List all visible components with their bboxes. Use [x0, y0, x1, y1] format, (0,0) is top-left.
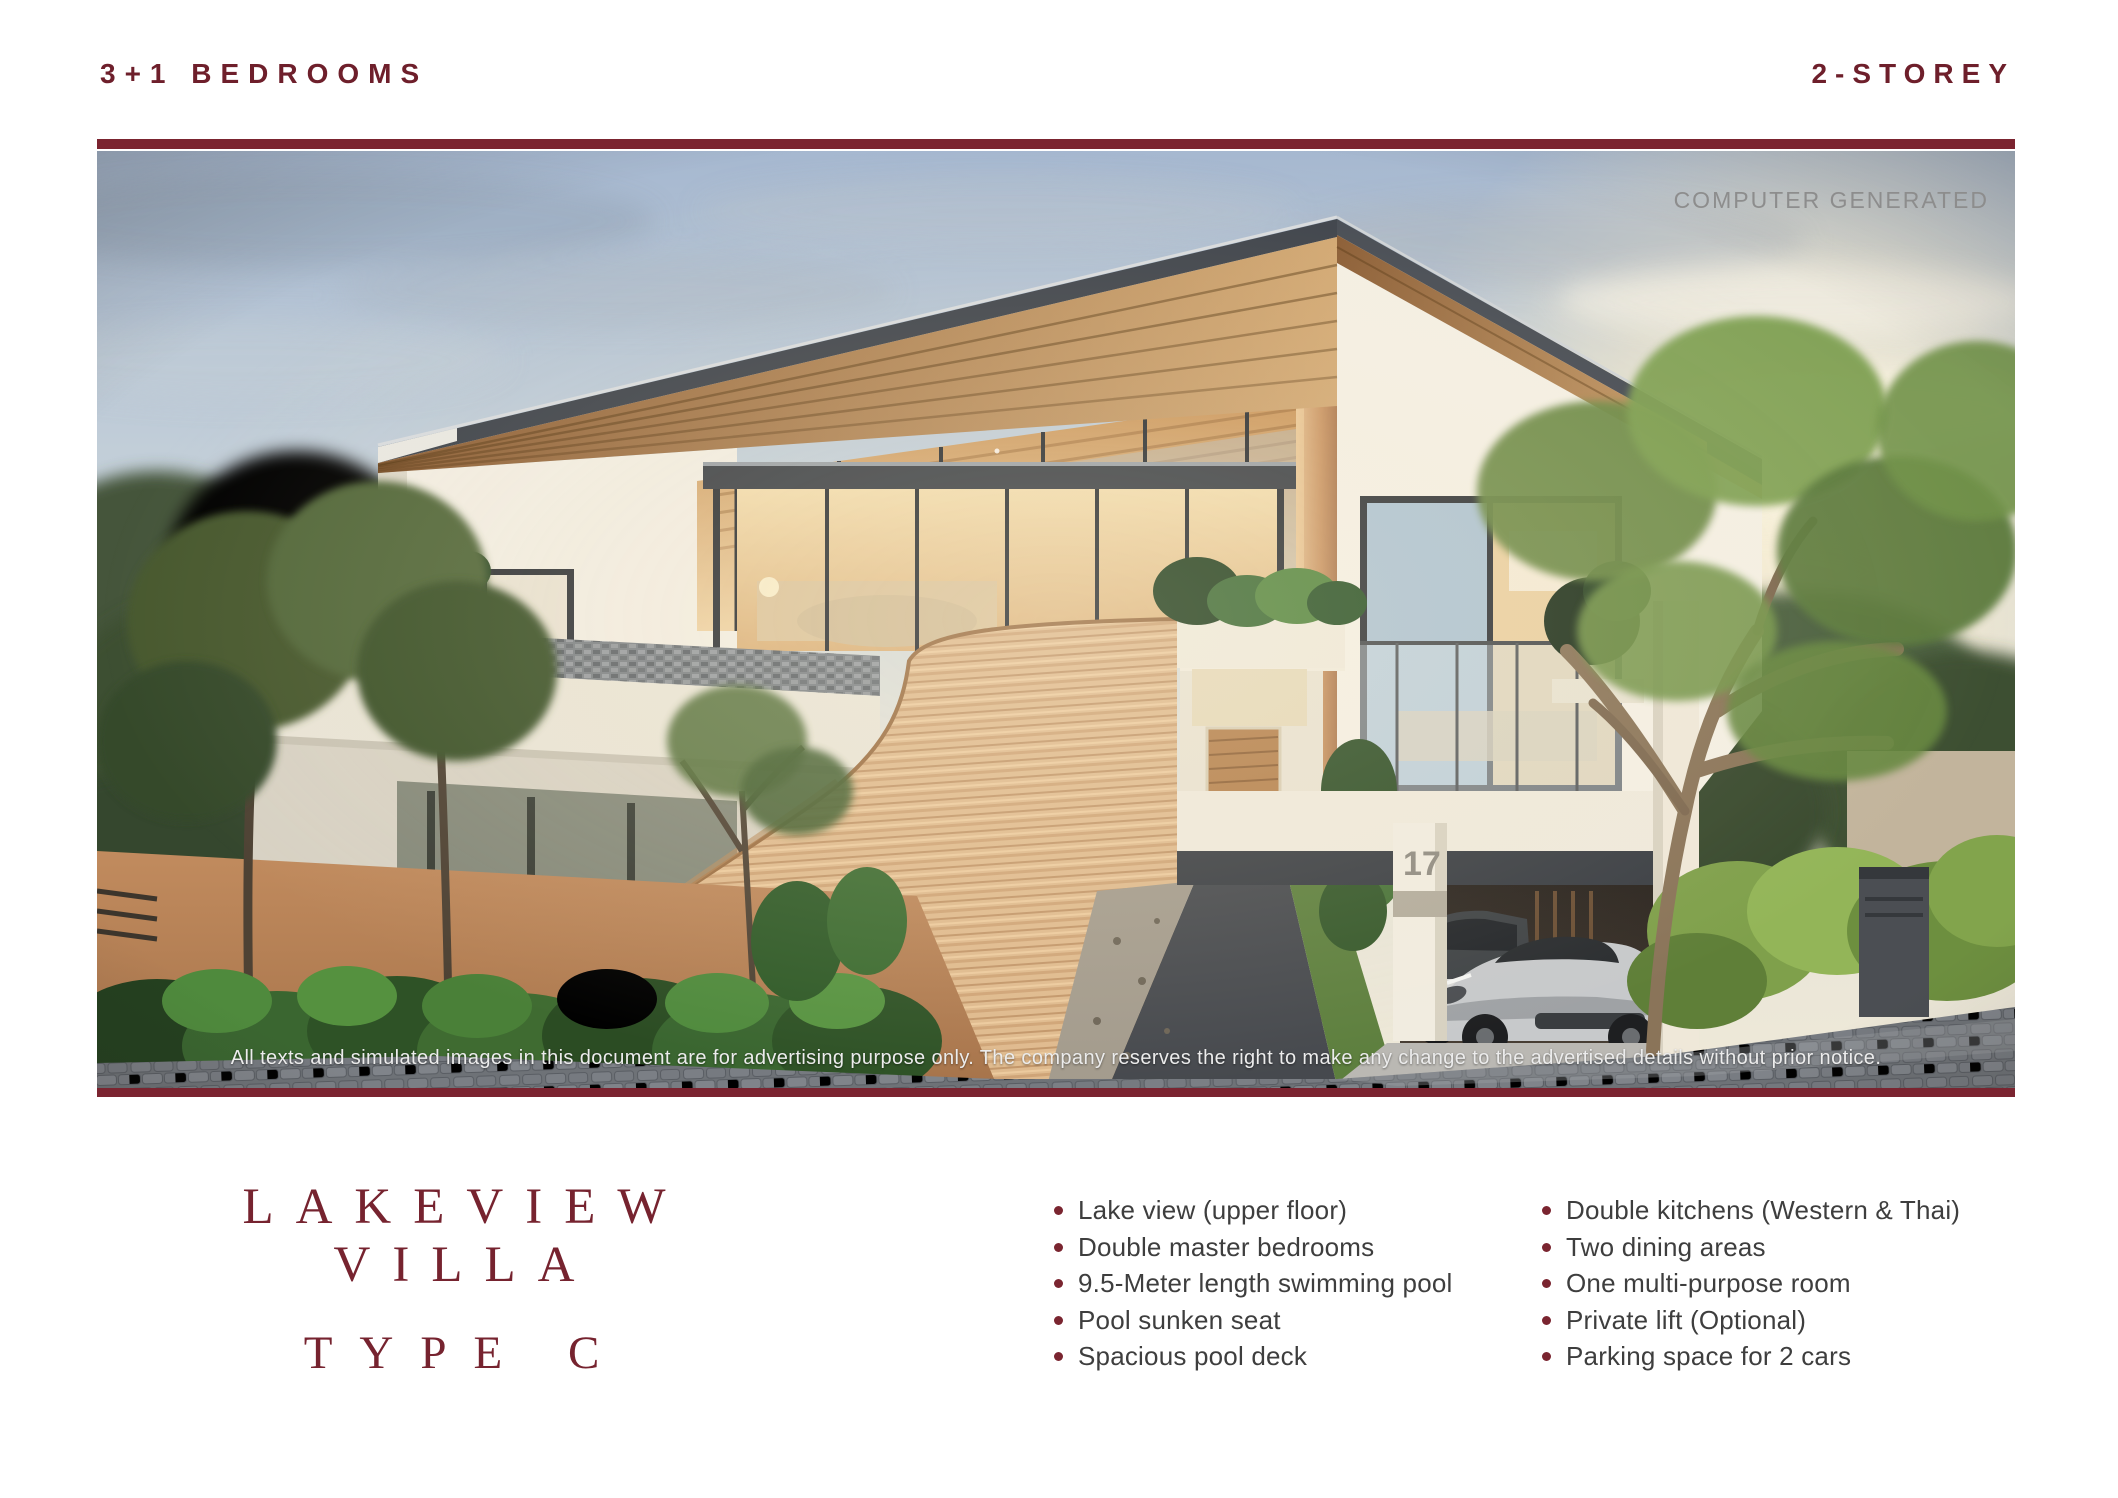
storey-label: 2-STOREY [1811, 58, 2015, 90]
feature-item: Lake view (upper floor) [1052, 1192, 1542, 1229]
feature-item: Pool sunken seat [1052, 1302, 1542, 1339]
computer-generated-watermark: COMPUTER GENERATED [1674, 187, 1989, 214]
top-divider [97, 139, 2015, 149]
title-block: LAKEVIEW VILLA TYPE C [115, 1178, 815, 1380]
feature-item: Two dining areas [1540, 1229, 2020, 1266]
bottom-divider [97, 1088, 2015, 1097]
features-column-1: Lake view (upper floor) Double master be… [1052, 1192, 1542, 1375]
villa-title: LAKEVIEW VILLA [115, 1178, 815, 1294]
villa-type: TYPE C [115, 1326, 815, 1380]
villa-photo: 17 [97, 151, 2015, 1088]
bedrooms-label: 3+1 BEDROOMS [100, 58, 428, 90]
feature-item: 9.5-Meter length swimming pool [1052, 1265, 1542, 1302]
feature-item: Double master bedrooms [1052, 1229, 1542, 1266]
feature-item: Double kitchens (Western & Thai) [1540, 1192, 2020, 1229]
feature-item: Parking space for 2 cars [1540, 1338, 2020, 1375]
brochure-page: 3+1 BEDROOMS 2-STOREY [0, 0, 2118, 1498]
vignette [97, 151, 2015, 1088]
villa-illustration: 17 [97, 151, 2015, 1088]
disclaimer-text: All texts and simulated images in this d… [97, 1047, 2015, 1070]
feature-item: Spacious pool deck [1052, 1338, 1542, 1375]
features-column-2: Double kitchens (Western & Thai) Two din… [1540, 1192, 2020, 1375]
feature-item: Private lift (Optional) [1540, 1302, 2020, 1339]
feature-item: One multi-purpose room [1540, 1265, 2020, 1302]
